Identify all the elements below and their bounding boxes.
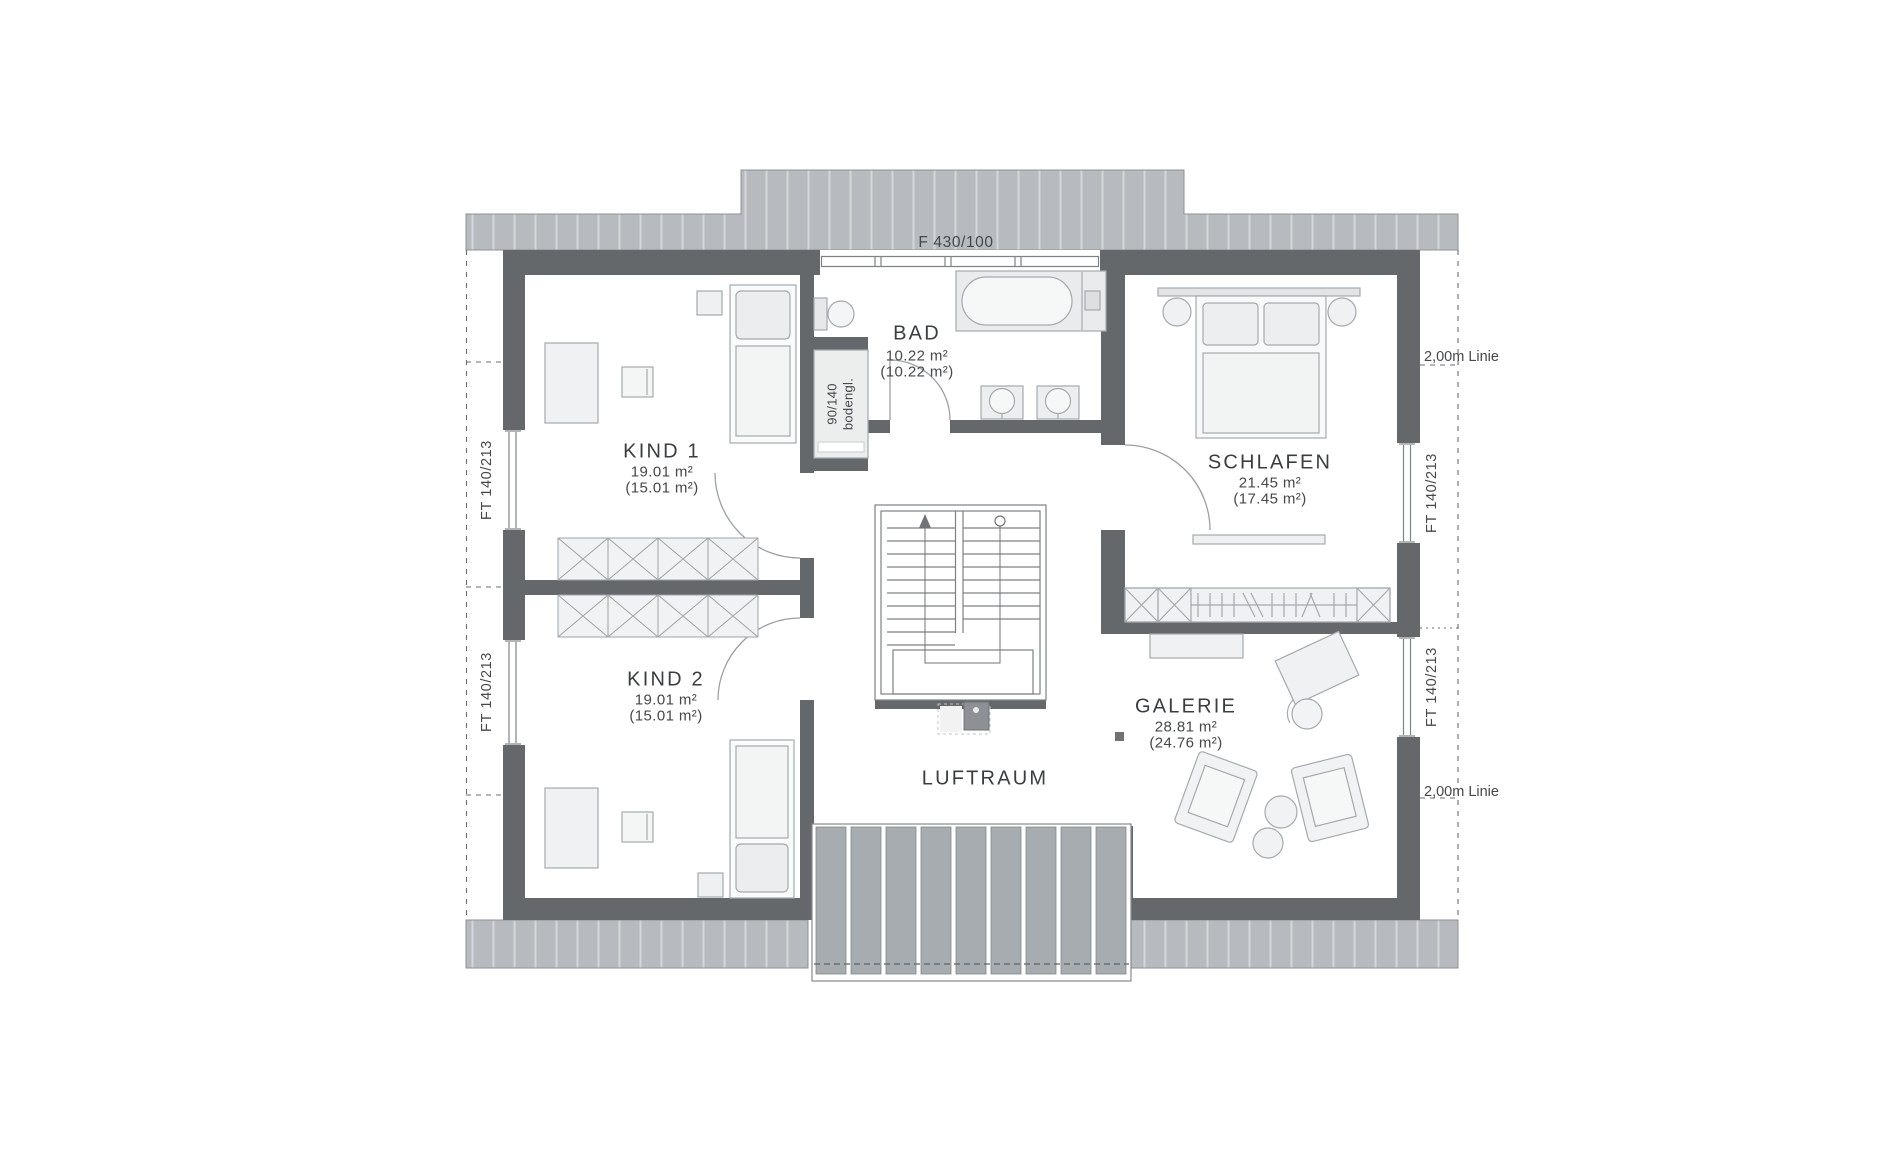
furniture-kind1 xyxy=(545,285,796,443)
roof-strip-bottom-left xyxy=(466,920,808,968)
two-meter-label-top: 2,00m Linie xyxy=(1424,349,1499,365)
room-area-net-schlafen: (17.45 m²) xyxy=(1233,491,1306,508)
room-label-kind2: KIND 2 xyxy=(627,669,705,692)
room-area-net-kind1: (15.01 m²) xyxy=(625,480,698,497)
room-label-luftraum: LUFTRAUM xyxy=(922,768,1049,791)
wall-right-2 xyxy=(1397,543,1420,637)
room-label-schlafen: SCHLAFEN xyxy=(1208,452,1332,475)
door-arc-schlafen xyxy=(1125,445,1210,530)
room-area-kind2: 19.01 m² xyxy=(635,692,697,709)
desk xyxy=(545,343,598,423)
furniture-kind2 xyxy=(545,740,794,898)
room-area-schlafen: 21.45 m² xyxy=(1239,475,1301,492)
window-right-schlafen xyxy=(1397,443,1420,543)
wall-shelf xyxy=(1193,535,1325,544)
wall-bottom-right xyxy=(1119,898,1420,920)
wardrobe-schlafen xyxy=(1125,588,1390,622)
pillow-right xyxy=(1264,303,1319,345)
bed-blanket xyxy=(736,346,790,436)
desk xyxy=(545,788,598,868)
nightstand-right xyxy=(1328,298,1356,326)
side-shelf xyxy=(697,291,722,315)
wall-top-left xyxy=(503,250,820,275)
floor-plan-page: F 430/100 KIND 1 19.01 m² (15.01 m²) KIN… xyxy=(0,0,1900,1151)
column-marker xyxy=(1115,732,1124,741)
wall-right-3 xyxy=(1397,737,1420,920)
balcony-slats xyxy=(816,827,1126,974)
room-label-bad: BAD xyxy=(893,323,941,346)
window-label-left-1: FT 140/213 xyxy=(479,440,495,520)
shower-size-text: 90/140 xyxy=(824,378,840,430)
shower-entry xyxy=(818,442,864,452)
room-area-galerie: 28.81 m² xyxy=(1155,719,1217,736)
two-meter-label-bottom: 2,00m Linie xyxy=(1424,784,1499,800)
chair xyxy=(622,367,653,397)
bed-blanket xyxy=(736,746,788,838)
shower-note-text: bodengl. xyxy=(840,378,856,430)
wall-top-right xyxy=(1100,250,1420,275)
room-area-net-galerie: (24.76 m²) xyxy=(1149,735,1222,752)
chair xyxy=(622,812,653,842)
wall-bad-bottom-1 xyxy=(868,420,890,433)
toilet-bowl xyxy=(828,301,854,327)
roof-strip-bottom-right xyxy=(1127,920,1458,968)
floor-plan-drawing xyxy=(0,0,1900,1151)
side-shelf xyxy=(698,873,723,897)
headboard xyxy=(1158,288,1360,296)
window-left-kind1 xyxy=(503,430,525,530)
wall-shower-bottom xyxy=(814,458,868,471)
wall-hall-2 xyxy=(800,558,814,618)
bed-blanket xyxy=(1203,353,1319,433)
pillow-left xyxy=(1203,303,1258,345)
room-area-net-kind2: (15.01 m²) xyxy=(629,708,702,725)
bathtub xyxy=(962,277,1072,325)
desk-chair xyxy=(1292,699,1322,729)
room-label-galerie: GALERIE xyxy=(1135,696,1237,719)
nightstand-left xyxy=(1163,298,1191,326)
window-left-kind2 xyxy=(503,640,525,745)
window-label-right-2: FT 140/213 xyxy=(1424,647,1440,727)
wall-left-3 xyxy=(503,745,525,920)
wall-schlafen-galerie xyxy=(1125,622,1397,634)
window-right-galerie xyxy=(1397,637,1420,737)
wall-shower-top xyxy=(814,337,868,350)
pouf-2 xyxy=(1253,828,1283,858)
dresser xyxy=(1150,634,1243,658)
wall-right-1 xyxy=(1397,250,1420,443)
wall-kind-divider xyxy=(503,580,800,595)
wall-bottom-left xyxy=(503,898,814,920)
stair-start-marker xyxy=(995,516,1005,526)
bed-pillow xyxy=(736,844,788,892)
room-area-kind1: 19.01 m² xyxy=(631,464,693,481)
room-label-kind1: KIND 1 xyxy=(623,441,701,464)
wall-bad-schlafen-2 xyxy=(1101,530,1125,634)
pouf-1 xyxy=(1265,796,1297,828)
balcony xyxy=(812,824,1131,981)
room-area-bad: 10.22 m² xyxy=(886,348,948,365)
staircase xyxy=(875,505,1046,700)
window-label-right-1: FT 140/213 xyxy=(1424,453,1440,533)
window-label-left-2: FT 140/213 xyxy=(479,652,495,732)
bed-pillow xyxy=(736,291,790,339)
room-area-net-bad: (10.22 m²) xyxy=(880,364,953,381)
window-label-top: F 430/100 xyxy=(918,234,993,252)
chimney xyxy=(938,702,990,734)
wall-hall-1 xyxy=(800,275,814,473)
bathtub-faucet xyxy=(1085,291,1100,310)
shower-label: 90/140 bodengl. xyxy=(824,378,855,430)
toilet-tank xyxy=(814,298,827,330)
gallery-desk xyxy=(1275,631,1359,704)
wall-bad-bottom-2 xyxy=(950,420,1115,433)
wall-left-1 xyxy=(503,250,525,430)
